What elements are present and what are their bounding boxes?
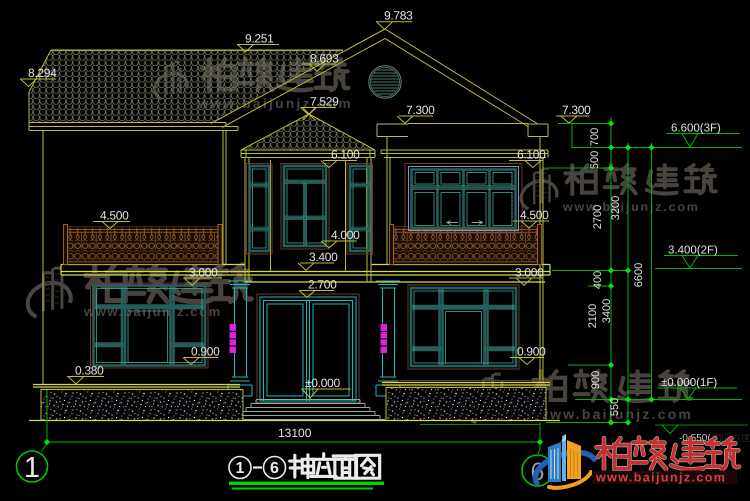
svg-text:0.900: 0.900 xyxy=(517,345,546,359)
svg-text:www.baijunjz.com: www.baijunjz.com xyxy=(562,200,700,214)
svg-text:3400: 3400 xyxy=(601,299,613,323)
svg-text:400: 400 xyxy=(592,271,604,289)
svg-text:6.100: 6.100 xyxy=(331,148,360,162)
svg-text:3.000: 3.000 xyxy=(189,266,218,280)
svg-text:2.700: 2.700 xyxy=(308,278,337,292)
svg-text:2100: 2100 xyxy=(587,304,599,328)
svg-text:3.000: 3.000 xyxy=(515,266,544,280)
svg-text:9.783: 9.783 xyxy=(384,9,413,23)
svg-text:7.300: 7.300 xyxy=(562,103,591,117)
svg-text:0.900: 0.900 xyxy=(191,345,220,359)
svg-text:8.294: 8.294 xyxy=(28,66,57,80)
svg-text:www.baijunjz.com: www.baijunjz.com xyxy=(595,471,726,485)
svg-text:6600: 6600 xyxy=(633,263,645,287)
svg-text:±0.000(1F): ±0.000(1F) xyxy=(661,377,717,389)
svg-text:900: 900 xyxy=(590,371,602,389)
svg-text:6.600(3F): 6.600(3F) xyxy=(671,123,721,135)
svg-text:4.000: 4.000 xyxy=(331,228,360,242)
svg-text:±0.000: ±0.000 xyxy=(305,376,340,390)
svg-text:9.251: 9.251 xyxy=(245,32,274,46)
svg-text:1: 1 xyxy=(236,460,245,477)
svg-text:8.693: 8.693 xyxy=(310,52,339,66)
svg-text:3.400(2F): 3.400(2F) xyxy=(668,245,718,257)
svg-text:7.529: 7.529 xyxy=(310,95,339,109)
svg-text:7.300: 7.300 xyxy=(406,103,435,117)
svg-text:500: 500 xyxy=(589,151,601,169)
svg-text:4.500: 4.500 xyxy=(520,208,549,222)
svg-text:3.400: 3.400 xyxy=(309,250,338,264)
svg-text:13100: 13100 xyxy=(278,426,312,440)
svg-text:4.500: 4.500 xyxy=(100,209,129,223)
svg-text:550: 550 xyxy=(609,398,621,416)
svg-text:1: 1 xyxy=(24,452,40,484)
svg-text:6: 6 xyxy=(270,460,279,477)
svg-text:700: 700 xyxy=(589,128,601,146)
svg-text:3200: 3200 xyxy=(610,196,622,220)
svg-text:6.100: 6.100 xyxy=(517,148,546,162)
svg-text:0.380: 0.380 xyxy=(75,364,104,378)
svg-text:2700: 2700 xyxy=(592,205,604,229)
